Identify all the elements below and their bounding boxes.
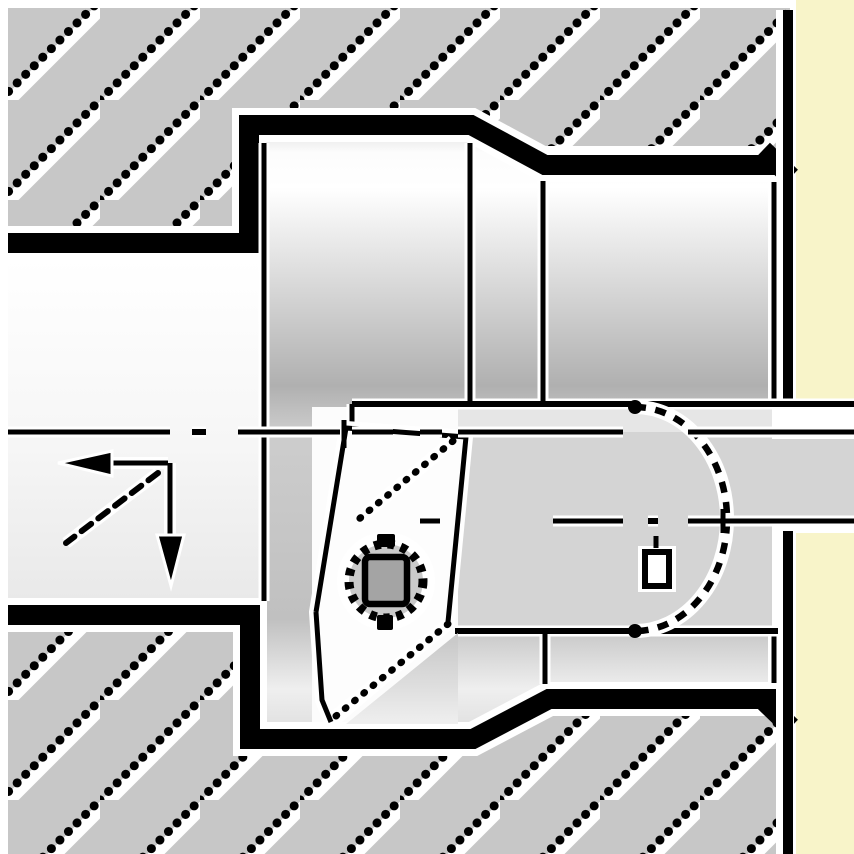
workpiece-face-top xyxy=(783,10,793,402)
arc-endpoint-bottom xyxy=(628,624,642,638)
screw-socket xyxy=(365,557,407,604)
screw-tab-bottom xyxy=(377,615,393,630)
screw-tab-top xyxy=(377,534,395,547)
torx-screw-icon xyxy=(337,532,435,630)
workpiece-face-bottom xyxy=(783,531,793,854)
catalog-illustration xyxy=(0,0,854,854)
boring-operation-diagram xyxy=(0,0,854,854)
arc-endpoint-top xyxy=(628,400,642,414)
slot-feature xyxy=(645,552,669,586)
bar-stripe xyxy=(772,439,854,518)
